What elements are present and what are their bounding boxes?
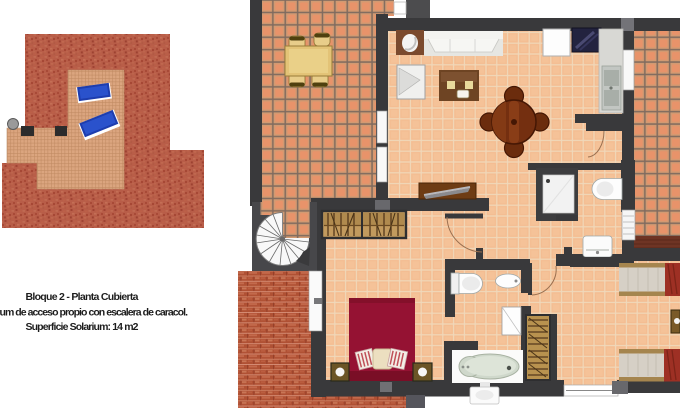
- svg-text:Bloque 2 - Planta Cubierta: Bloque 2 - Planta Cubierta: [26, 291, 139, 303]
- svg-text:Superficie Solarium: 14 m2: Superficie Solarium: 14 m2: [26, 321, 139, 333]
- svg-text:Solarium de acceso propio con: Solarium de acceso propio con escalera d…: [0, 307, 188, 319]
